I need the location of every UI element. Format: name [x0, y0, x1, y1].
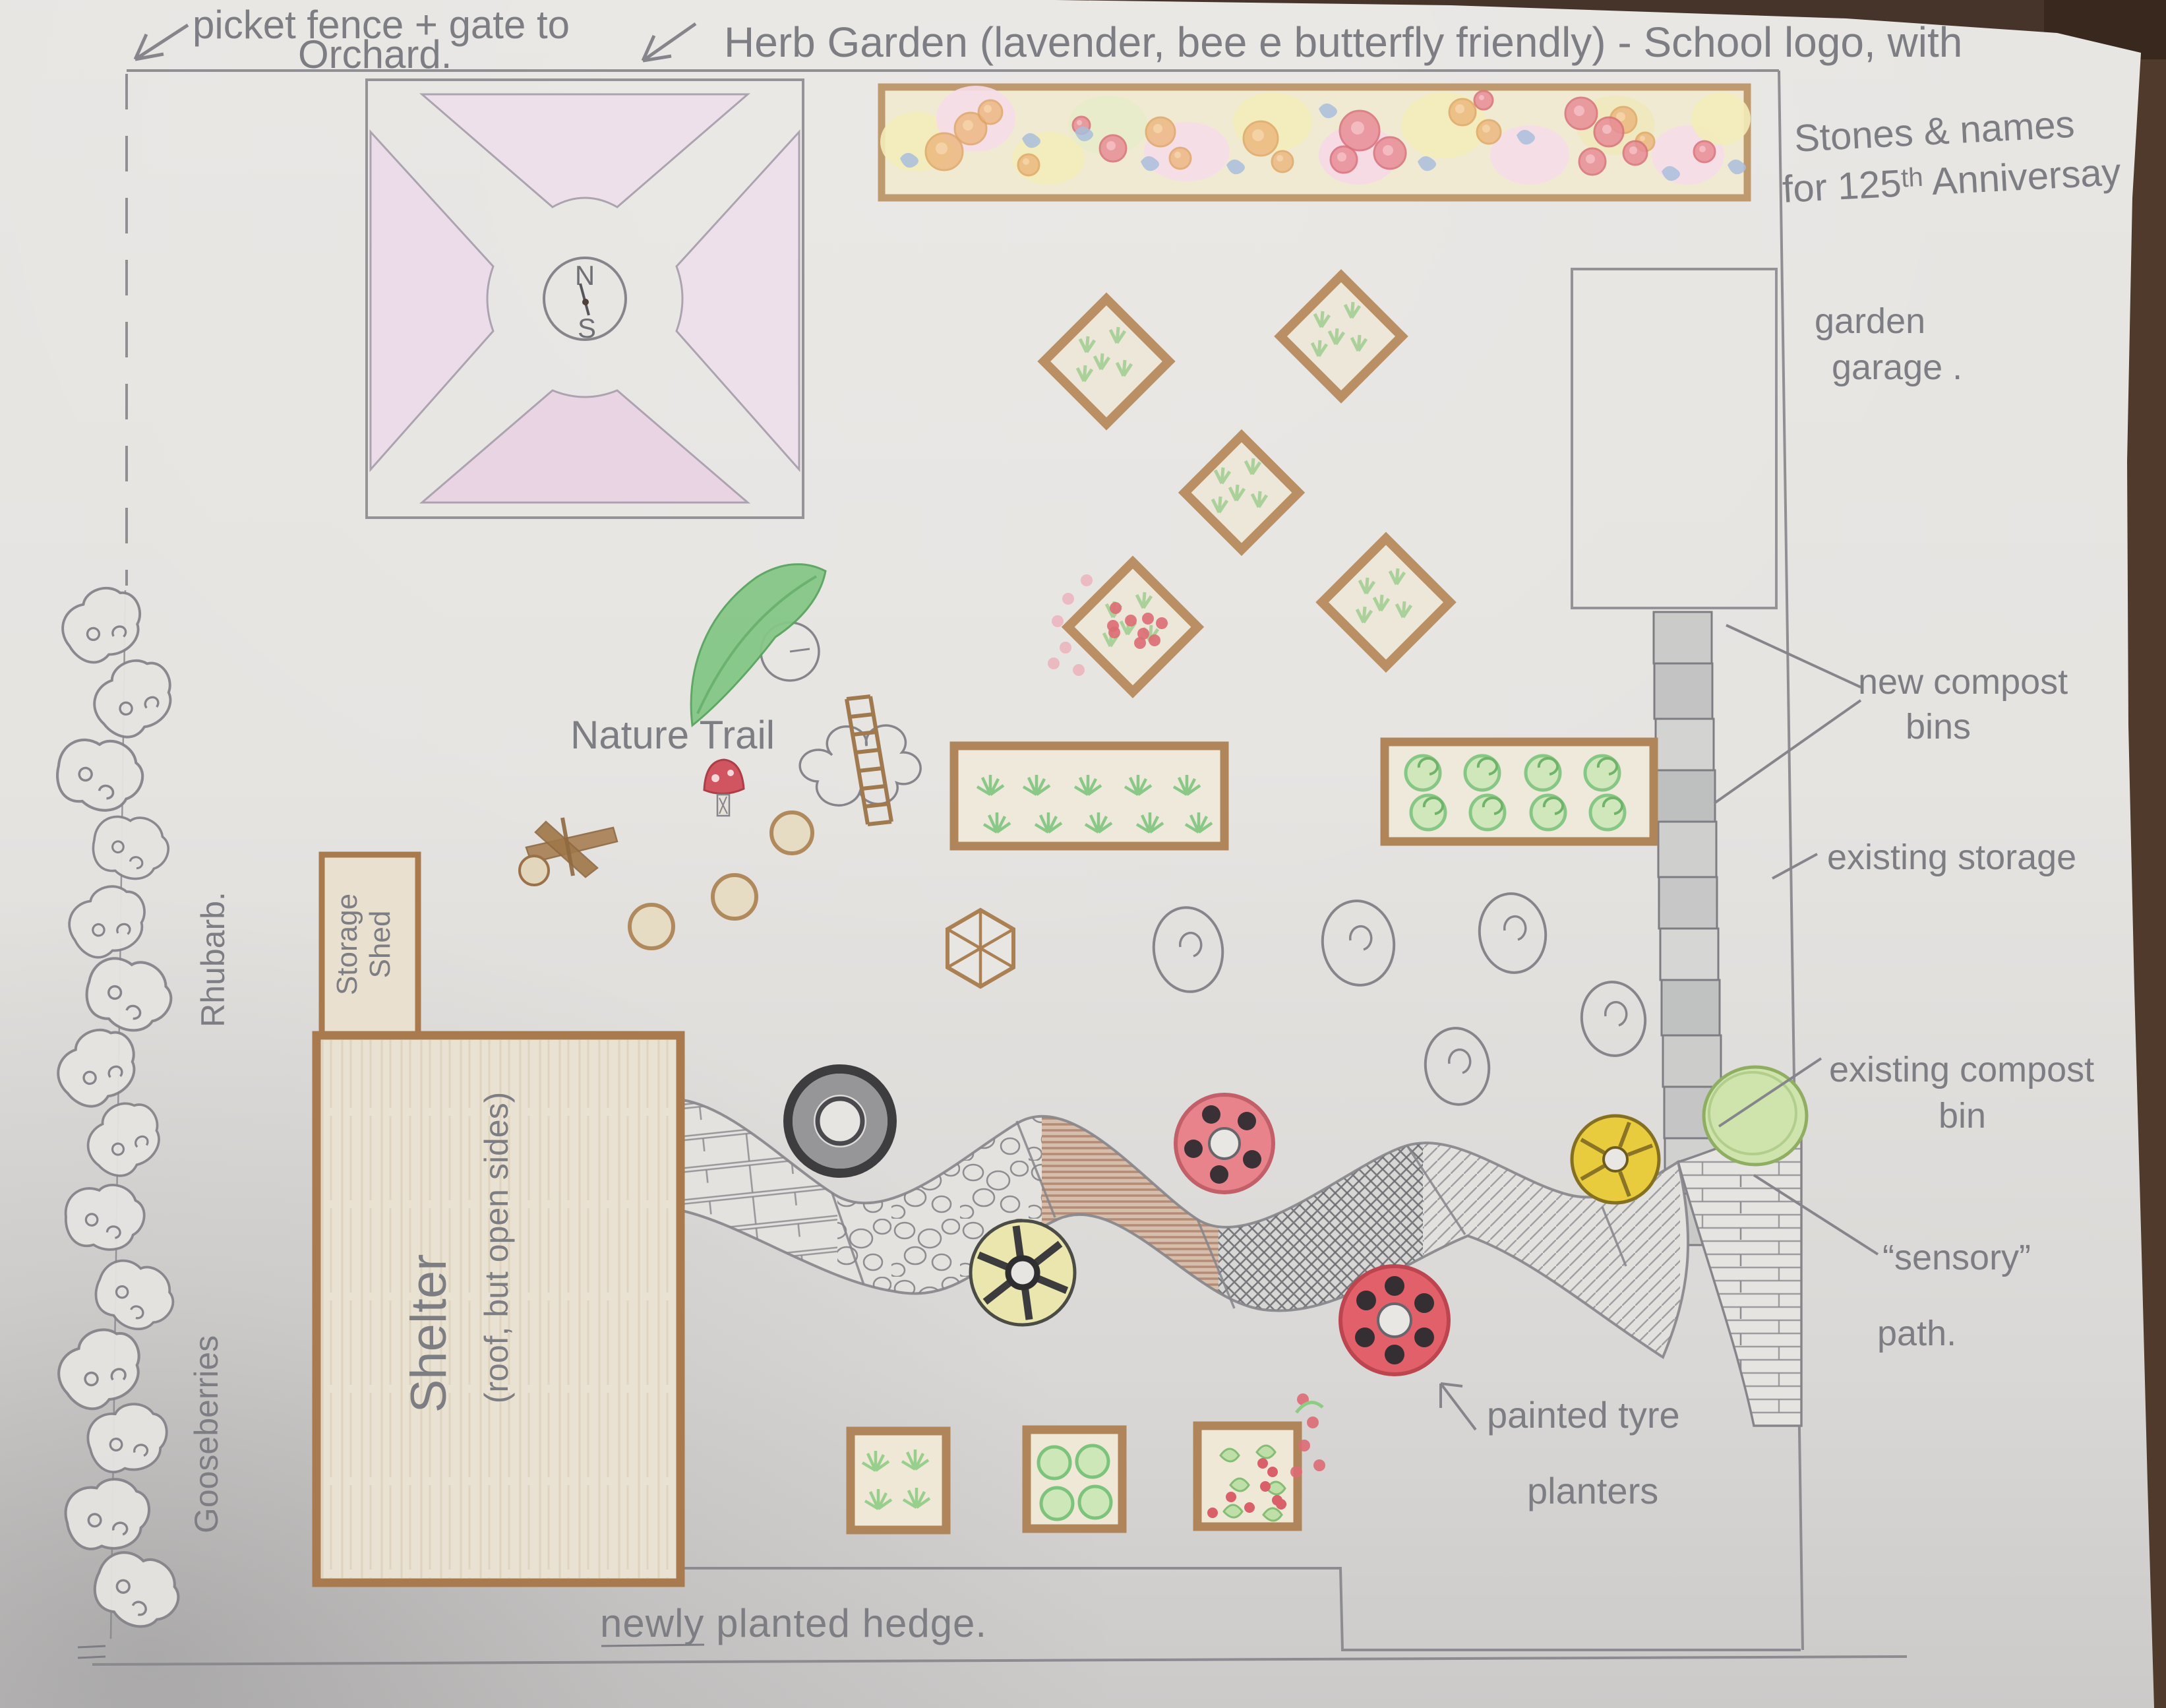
svg-text:Gooseberries: Gooseberries	[188, 1335, 225, 1533]
svg-text:path.: path.	[1877, 1314, 1956, 1353]
svg-text:(roof, but open sides): (roof, but open sides)	[478, 1092, 515, 1404]
svg-text:Orchard.: Orchard.	[298, 32, 452, 76]
svg-text:planters: planters	[1527, 1470, 1658, 1511]
svg-text:painted tyre: painted tyre	[1487, 1394, 1680, 1436]
svg-text:Herb Garden (lavender, bee e b: Herb Garden (lavender, bee e butterfly f…	[724, 18, 1962, 66]
svg-text:bin: bin	[1939, 1096, 1986, 1136]
svg-text:Shed: Shed	[364, 911, 396, 979]
svg-text:Rhubarb.: Rhubarb.	[195, 892, 231, 1027]
svg-text:newly planted hedge.: newly planted hedge.	[600, 1601, 987, 1645]
svg-text:garage .: garage .	[1832, 348, 1962, 387]
svg-text:Shelter: Shelter	[401, 1254, 457, 1413]
svg-text:Storage: Storage	[331, 894, 363, 995]
svg-text:bins: bins	[1906, 707, 1971, 747]
svg-text:existing compost: existing compost	[1829, 1050, 2094, 1089]
svg-text:garden: garden	[1815, 301, 1925, 341]
svg-text:N: N	[575, 260, 595, 291]
svg-text:Nature Trail: Nature Trail	[570, 713, 775, 757]
svg-text:S: S	[578, 313, 596, 344]
svg-text:“sensory”: “sensory”	[1882, 1238, 2031, 1277]
svg-text:existing storage: existing storage	[1827, 838, 2076, 877]
svg-text:new compost: new compost	[1858, 662, 2068, 702]
